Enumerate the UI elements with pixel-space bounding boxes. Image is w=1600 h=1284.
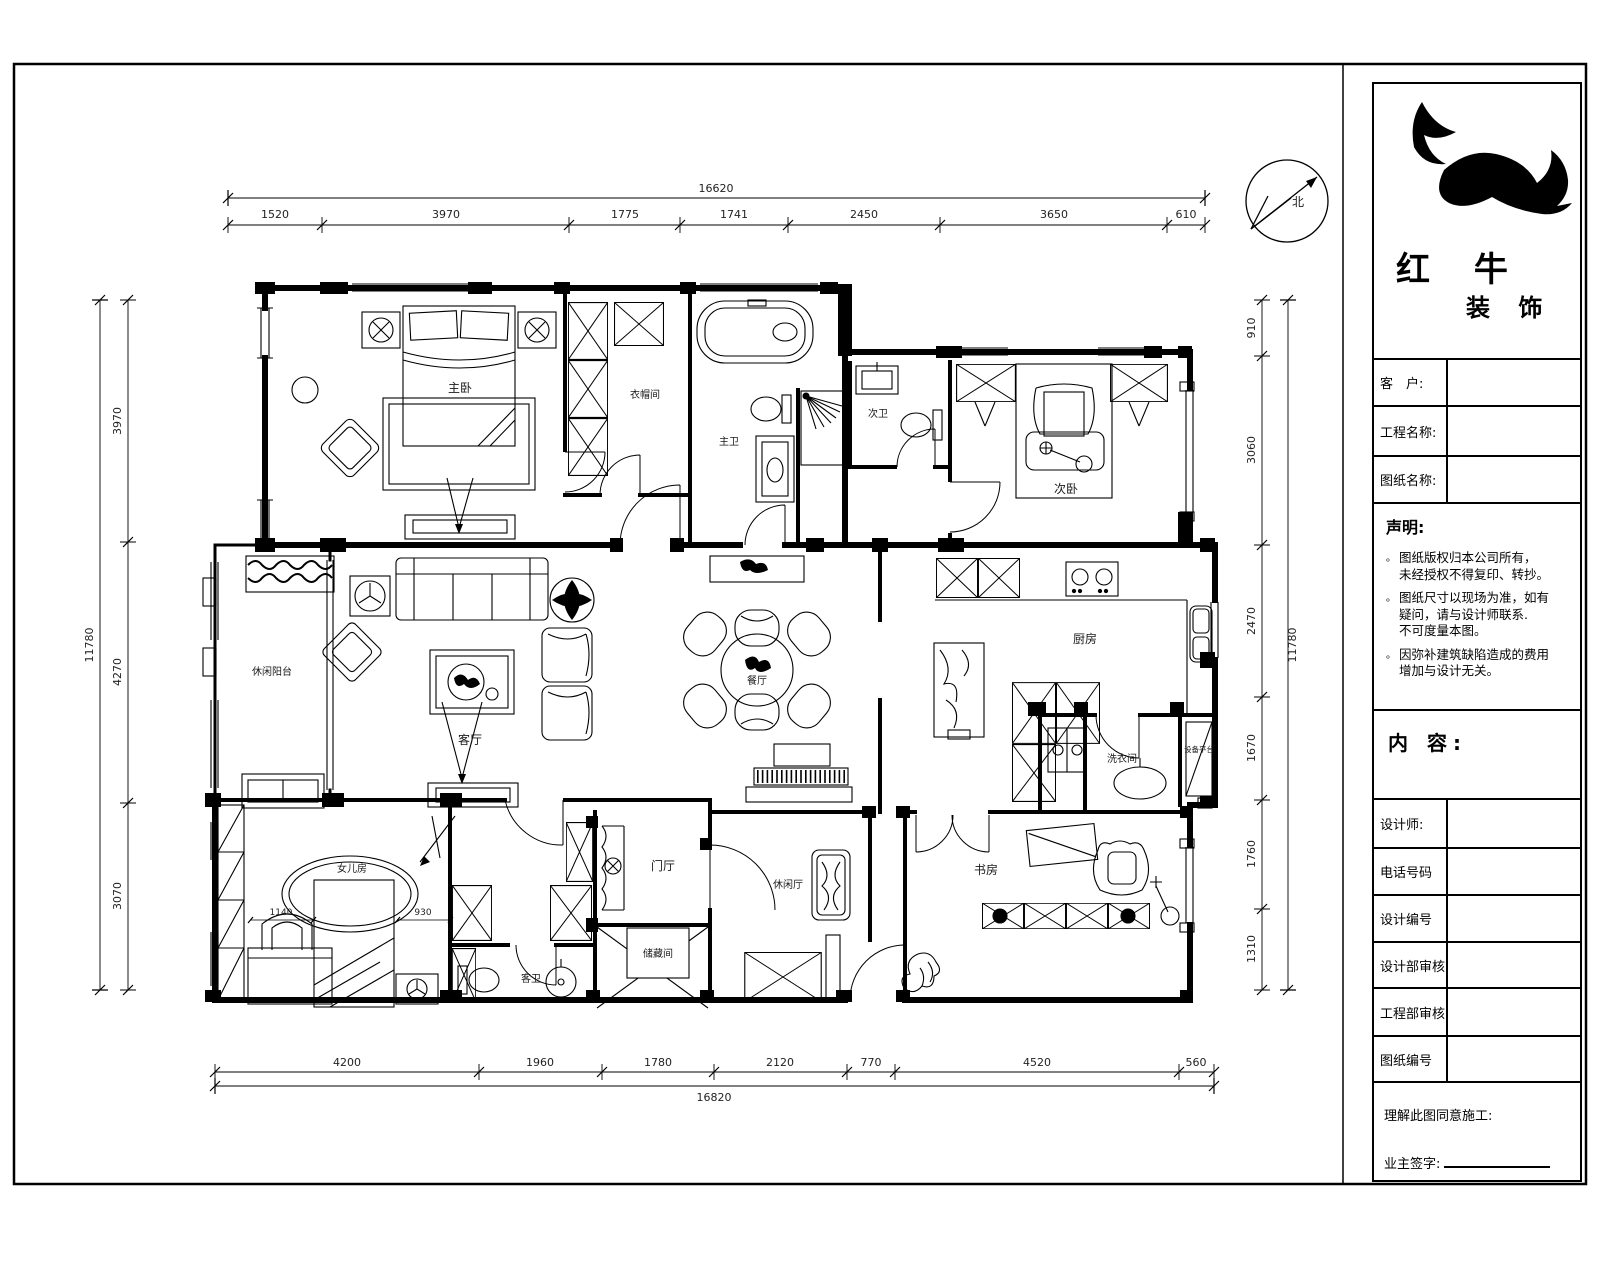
study-furniture: [982, 824, 1179, 929]
drawing-sheet: { "north_label": "北", "brand": {"line1":…: [0, 0, 1600, 1280]
field-row-project-name: 工程名称:: [1374, 405, 1580, 455]
dim-top-segments: 1520 3970 1775 1741 2450 3650 610: [223, 208, 1210, 233]
svg-text:2120: 2120: [766, 1056, 794, 1069]
svg-text:770: 770: [861, 1056, 882, 1069]
closet-furniture: [568, 302, 663, 475]
room-label-foyer: 门厅: [651, 858, 675, 873]
balcony-furniture: [242, 556, 334, 808]
approval-line: 理解此图同意施工:: [1384, 1105, 1572, 1124]
svg-text:4520: 4520: [1023, 1056, 1051, 1069]
room-label-balcony: 休闲阳台: [252, 665, 292, 678]
statement-bullet: 。: [1386, 550, 1399, 583]
svg-text:1520: 1520: [261, 208, 289, 221]
row-value-engineering-audit[interactable]: [1448, 989, 1580, 1035]
owner-signature-line: 业主签字:: [1384, 1152, 1572, 1172]
statement-bullet: 。: [1386, 590, 1399, 640]
row-label-phone: 电话号码: [1374, 849, 1448, 894]
field-value-project-name[interactable]: [1448, 407, 1580, 455]
north-label: 北: [1292, 195, 1304, 209]
statement-item: 。 图纸版权归本公司所有， 未经授权不得复印、转抄。: [1386, 550, 1572, 583]
field-row-phone: 电话号码: [1374, 847, 1580, 894]
svg-text:3970: 3970: [111, 407, 124, 435]
row-label-designer: 设计师:: [1374, 800, 1448, 847]
field-value-drawing-name[interactable]: [1448, 457, 1580, 502]
row-label-design-no: 设计编号: [1374, 896, 1448, 941]
field-row-drawing-no: 图纸编号: [1374, 1035, 1580, 1081]
bull-logo-icon: [1374, 84, 1580, 234]
row-label-drawing-no: 图纸编号: [1374, 1037, 1448, 1081]
field-value-client[interactable]: [1448, 360, 1580, 405]
svg-text:3060: 3060: [1245, 436, 1258, 464]
field-row-engineering-audit: 工程部审核:: [1374, 987, 1580, 1035]
room-label-second-bedroom: 次卧: [1054, 482, 1078, 496]
svg-text:4270: 4270: [111, 658, 124, 686]
row-value-phone[interactable]: [1448, 849, 1580, 894]
laundry-furniture: [1048, 722, 1212, 808]
master-bedroom-furniture: [292, 306, 556, 539]
svg-text:1670: 1670: [1245, 734, 1258, 762]
svg-text:11780: 11780: [1286, 628, 1299, 663]
svg-text:16820: 16820: [697, 1091, 732, 1104]
room-label-daughter-room: 女儿房: [337, 862, 367, 875]
svg-text:610: 610: [1176, 208, 1197, 221]
second-bath-furniture: [856, 362, 942, 440]
sheet-frame: [14, 64, 1586, 1184]
row-label-engineering-audit: 工程部审核:: [1374, 989, 1448, 1035]
room-label-dining-room: 餐厅: [747, 674, 767, 687]
room-label-storage: 储藏间: [643, 947, 673, 960]
living-room-furniture: [321, 558, 594, 807]
inner-dim-2: 930: [414, 908, 431, 918]
row-value-design-no[interactable]: [1448, 896, 1580, 941]
field-row-design-audit: 设计部审核:: [1374, 941, 1580, 987]
dim-left-total: 11780: [83, 295, 108, 995]
master-bath-furniture: [697, 300, 845, 502]
svg-text:1775: 1775: [611, 208, 639, 221]
signature-section: 理解此图同意施工: 业主签字:: [1374, 1081, 1580, 1180]
statement-item: 。 因弥补建筑缺陷造成的费用 增加与设计无关。: [1386, 647, 1572, 680]
field-row-design-no: 设计编号: [1374, 894, 1580, 941]
room-label-second-bath: 次卫: [868, 407, 888, 420]
dim-top-total: 16620: [223, 182, 1210, 206]
inner-dim-1: 1140: [270, 908, 293, 918]
room-label-guest-bath: 客卫: [521, 972, 541, 985]
row-value-design-audit[interactable]: [1448, 943, 1580, 987]
statement-section: 声明: 。 图纸版权归本公司所有， 未经授权不得复印、转抄。 。 图纸尺寸以现场…: [1374, 502, 1580, 709]
svg-text:1760: 1760: [1245, 840, 1258, 868]
room-label-leisure-room: 休闲厅: [773, 878, 803, 891]
svg-text:4200: 4200: [333, 1056, 361, 1069]
field-label-project-name: 工程名称:: [1374, 407, 1448, 455]
title-block: 红 牛 装 饰 客 户: 工程名称: 图纸名称: 声明: 。 图纸版权归本公司所…: [1372, 82, 1582, 1182]
company-logo-cell: 红 牛 装 饰: [1374, 84, 1580, 358]
statement-bullet: 。: [1386, 647, 1399, 680]
row-value-designer[interactable]: [1448, 800, 1580, 847]
svg-text:1780: 1780: [644, 1056, 672, 1069]
row-value-drawing-no[interactable]: [1448, 1037, 1580, 1081]
kitchen-furniture: [934, 558, 1212, 801]
brand-name: 红 牛: [1396, 242, 1524, 291]
field-label-client: 客 户:: [1374, 360, 1448, 405]
room-label-living-room: 客厅: [458, 732, 482, 747]
row-label-design-audit: 设计部审核:: [1374, 943, 1448, 987]
room-label-closet: 衣帽间: [630, 388, 660, 401]
north-arrow: 北: [1246, 160, 1328, 242]
dim-bottom-total: 16820: [210, 1078, 1219, 1104]
second-bedroom-furniture: [957, 364, 1168, 498]
statement-title: 声明:: [1386, 514, 1572, 538]
field-row-drawing-name: 图纸名称:: [1374, 455, 1580, 502]
svg-text:1310: 1310: [1245, 935, 1258, 963]
dim-right-total: 11780: [1280, 295, 1299, 995]
statement-item: 。 图纸尺寸以现场为准，如有 疑问，请与设计师联系. 不可度量本图。: [1386, 590, 1572, 640]
content-label: 内 容:: [1374, 709, 1580, 798]
svg-text:560: 560: [1186, 1056, 1207, 1069]
svg-text:16620: 16620: [699, 182, 734, 195]
svg-text:3970: 3970: [432, 208, 460, 221]
room-label-laundry: 洗衣间: [1107, 752, 1137, 765]
svg-text:1741: 1741: [720, 208, 748, 221]
room-label-master-bath: 主卫: [719, 436, 739, 448]
field-row-client: 客 户:: [1374, 358, 1580, 405]
svg-text:910: 910: [1245, 318, 1258, 339]
room-label-equipment-platform: 设备平台: [1184, 744, 1214, 754]
signature-blank[interactable]: [1444, 1152, 1550, 1168]
floor-plan: 北: [0, 0, 1600, 1280]
svg-text:2450: 2450: [850, 208, 878, 221]
svg-text:3650: 3650: [1040, 208, 1068, 221]
room-label-kitchen: 厨房: [1073, 631, 1097, 646]
brand-subname: 装 饰: [1466, 288, 1552, 323]
svg-text:3070: 3070: [111, 882, 124, 910]
field-row-designer: 设计师:: [1374, 798, 1580, 847]
room-label-master-bedroom: 主卧: [448, 381, 472, 395]
dim-bottom-segments: 4200 1960 1780 2120 770 4520 560: [210, 1056, 1219, 1080]
svg-text:2470: 2470: [1245, 607, 1258, 635]
leisure-room-furniture: [745, 850, 940, 1002]
svg-text:1960: 1960: [526, 1056, 554, 1069]
svg-text:11780: 11780: [83, 628, 96, 663]
room-label-study: 书房: [974, 862, 998, 877]
dim-right-segments: 910 3060 2470 1670 1760 1310: [1245, 295, 1270, 995]
foyer-furniture: [566, 823, 708, 1008]
dim-left-segments: 3970 4270 3070: [111, 295, 136, 995]
field-label-drawing-name: 图纸名称:: [1374, 457, 1448, 502]
